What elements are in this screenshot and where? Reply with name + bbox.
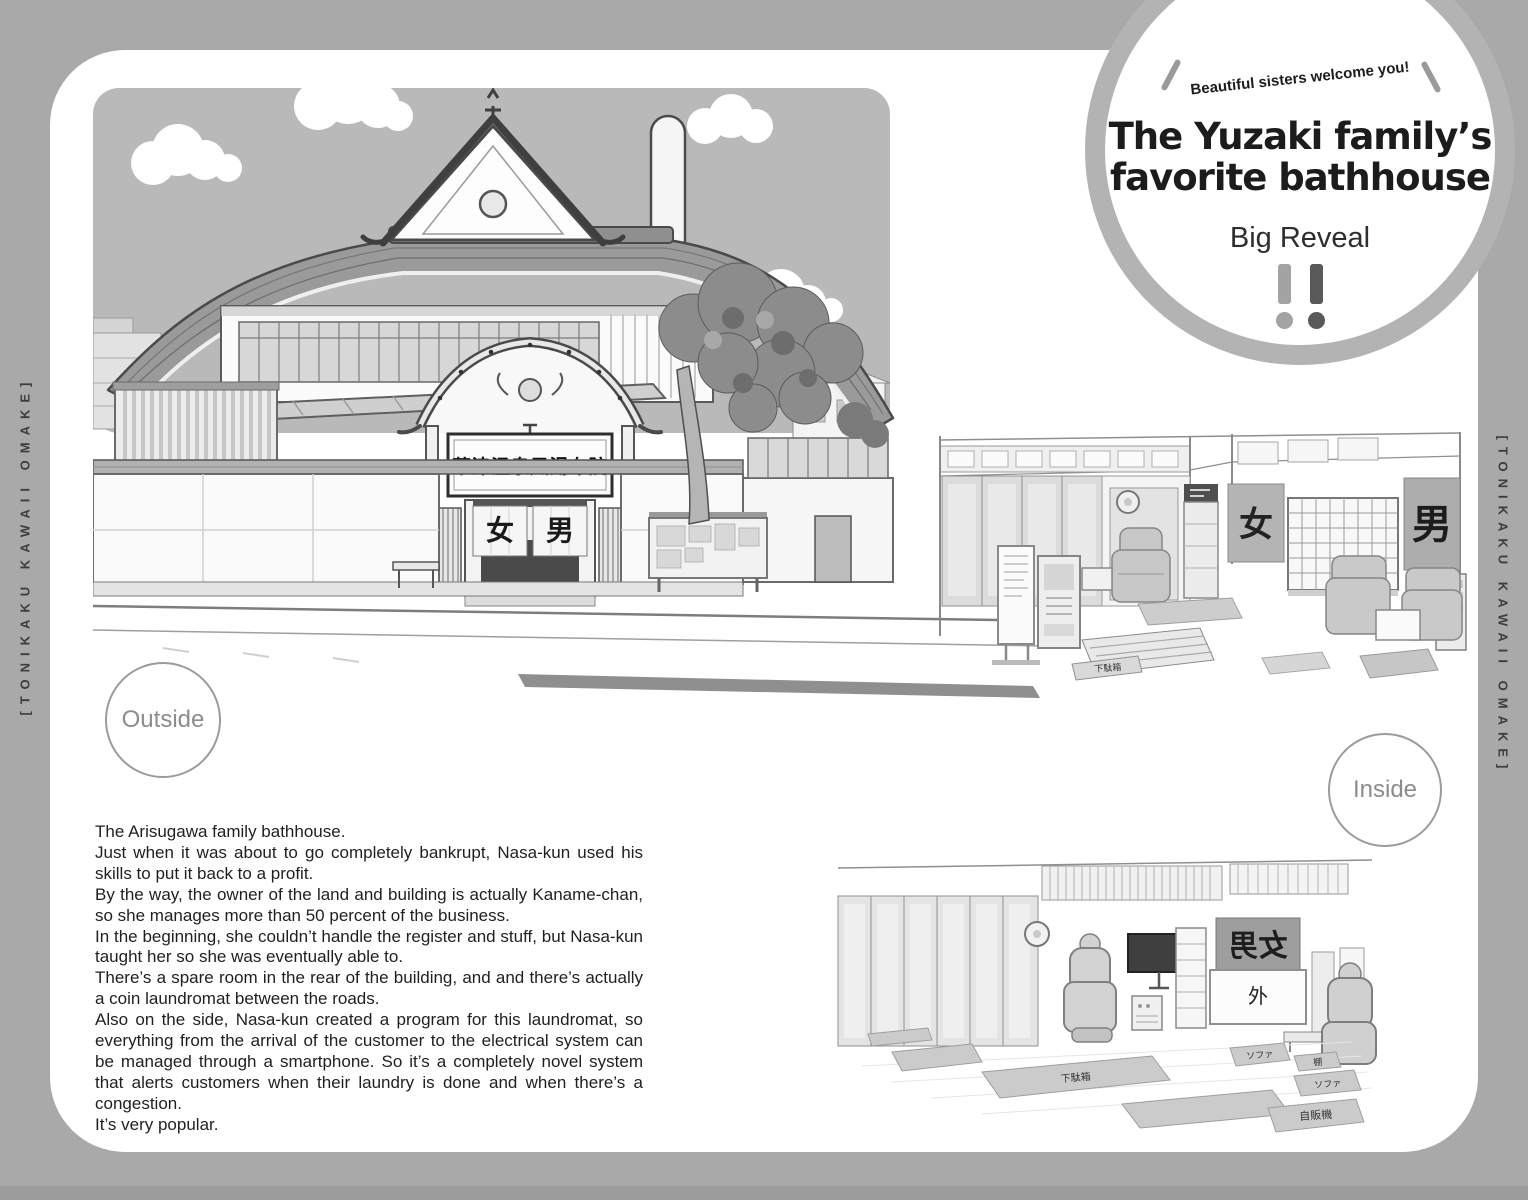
exterior-curtain-men: 男 <box>546 514 574 547</box>
exterior-curtain-women: 女 <box>486 514 514 547</box>
description-line: It’s very popular. <box>95 1115 643 1136</box>
description-line: The Arisugawa family bathhouse. <box>95 822 643 843</box>
lounge-curtain-back: 女男 <box>1216 918 1300 970</box>
spine-title-left: [TONIKAKU KAWAII OMAKE] <box>18 436 33 716</box>
manga-omake-page: [TONIKAKU KAWAII OMAKE] [TONIKAKU KAWAII… <box>0 0 1528 1200</box>
description-line: There’s a spare room in the rear of the … <box>95 968 643 1010</box>
mat-label-shelf: 棚 <box>1313 1056 1323 1069</box>
wall-fan <box>1117 491 1139 513</box>
badge-title-line1: The Yuzaki family’s <box>1100 116 1500 157</box>
massage-chair-left <box>1064 934 1116 1042</box>
interior-lobby-illustration: 女 男 <box>932 428 1468 694</box>
entrance-crest <box>519 379 541 401</box>
badge-title-line2: favorite bathhouse <box>1100 157 1500 198</box>
mat-label-sofa-2: ソファ <box>1314 1079 1342 1091</box>
lounge-fan <box>1025 922 1049 946</box>
inside-label: Inside <box>1353 776 1417 804</box>
outside-label-circle: Outside <box>105 662 221 778</box>
outside-label: Outside <box>122 706 205 734</box>
badge-title: The Yuzaki family’s favorite bathhouse <box>1100 116 1500 199</box>
lounge-ranma <box>1042 864 1348 900</box>
small-machine <box>1132 996 1162 1030</box>
shelf-unit <box>1176 928 1206 1028</box>
outside-sign-text: 外 <box>1248 984 1268 1008</box>
badge-subtitle: Big Reveal <box>1150 222 1450 255</box>
description-line: Just when it was about to go completely … <box>95 843 643 885</box>
description-line: By the way, the owner of the land and bu… <box>95 885 643 927</box>
lobby-curtain-men-text: 男 <box>1412 502 1452 548</box>
lobby-transom <box>940 438 1378 472</box>
mat-label-vending: 自販機 <box>1299 1107 1333 1123</box>
exclamation-marks <box>1278 264 1328 330</box>
lobby-curtain-women: 女 <box>1228 484 1284 562</box>
lobby-curtain-men: 男 <box>1404 478 1460 570</box>
lounge-curtain-back-text: 女男 <box>1228 929 1288 964</box>
description-line: In the beginning, she couldn’t handle th… <box>95 927 643 969</box>
lounge-shoji-wall <box>838 896 1038 1046</box>
lobby-step-platform: 下駄箱 <box>1072 628 1214 680</box>
inside-label-circle: Inside <box>1328 733 1442 847</box>
exterior-bathhouse-illustration: 草津温泉風湯布院 女 男 <box>93 88 1053 718</box>
vending-machine-left <box>1038 556 1080 648</box>
bottom-shadow-strip <box>0 1186 1528 1200</box>
spine-title-right: [TONIKAKU KAWAII OMAKE] <box>1496 436 1511 716</box>
description-text: The Arisugawa family bathhouse. Just whe… <box>95 822 643 1136</box>
description-line: Also on the side, Nasa-kun created a pro… <box>95 1010 643 1115</box>
outside-sign-counter: 外 <box>1210 970 1306 1024</box>
info-sign-board <box>992 546 1040 665</box>
locker-cabinet <box>1184 484 1218 598</box>
side-door <box>815 516 851 582</box>
mat-label-sofa-1: ソファ <box>1246 1050 1274 1062</box>
front-wall <box>93 460 743 596</box>
street <box>93 606 1043 698</box>
lobby-curtain-women-text: 女 <box>1239 505 1273 545</box>
interior-lounge-illustration: 女男 外 <box>832 856 1378 1140</box>
